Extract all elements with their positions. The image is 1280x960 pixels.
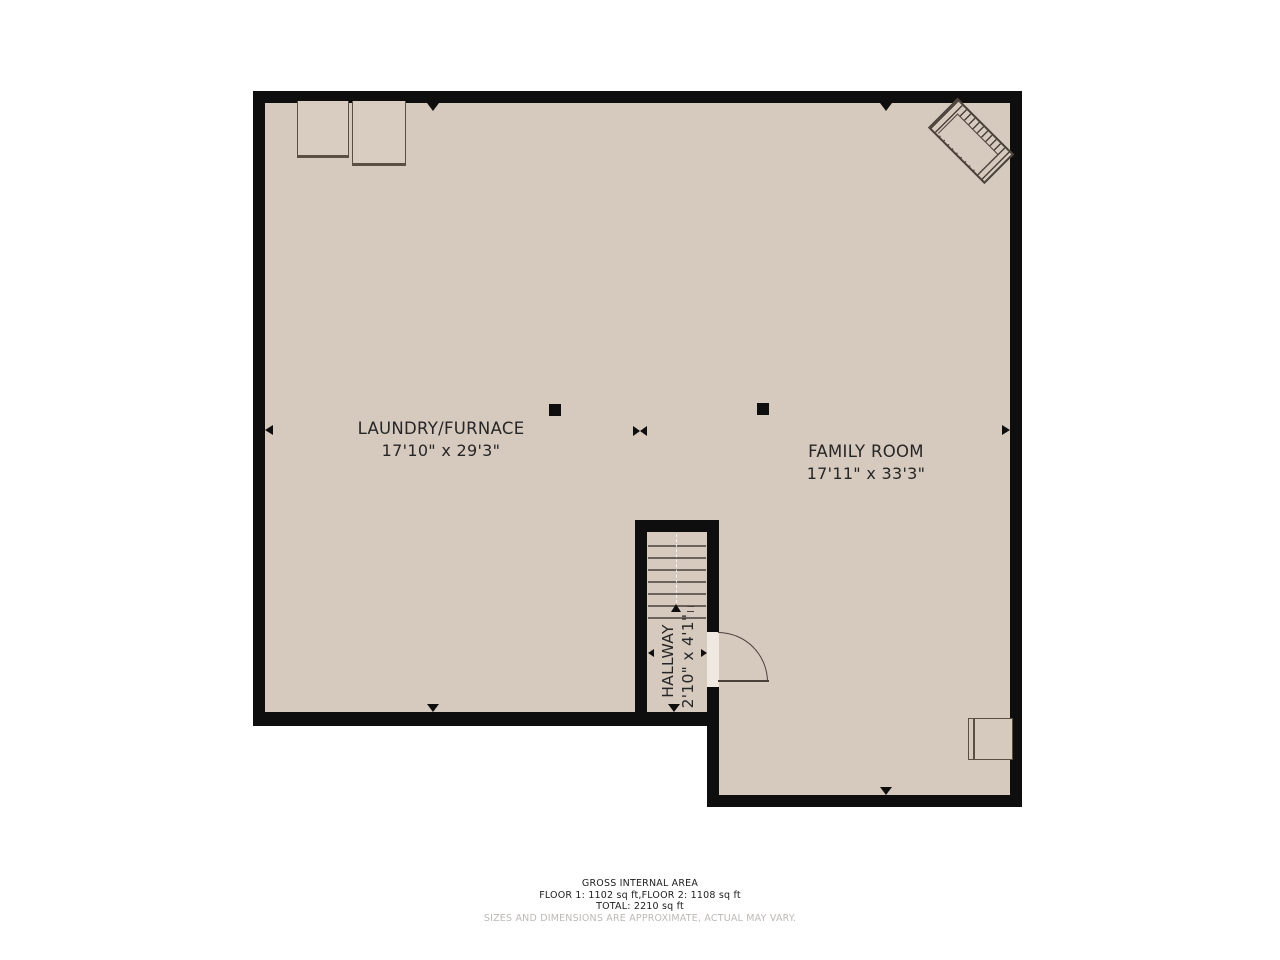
wall-tick-left bbox=[265, 425, 273, 435]
wall-stairs-right-upper bbox=[707, 520, 719, 632]
label-family-room: FAMILY ROOM 17'11" x 33'3" bbox=[807, 441, 926, 485]
support-column-2 bbox=[757, 403, 769, 415]
stair-direction-arrow bbox=[671, 604, 681, 612]
stair-tread bbox=[648, 557, 706, 559]
room-name: FAMILY ROOM bbox=[807, 441, 926, 463]
cabinet bbox=[968, 718, 1013, 760]
stair-tread bbox=[648, 545, 706, 547]
stair-tread bbox=[648, 593, 706, 595]
wall-stairs-left bbox=[635, 520, 647, 712]
wall-tick-right bbox=[1002, 425, 1010, 435]
cabinet-divider bbox=[973, 719, 975, 759]
gross-internal-area-heading: GROSS INTERNAL AREA bbox=[0, 878, 1280, 890]
wall-tick-bottom-1 bbox=[427, 704, 439, 712]
appliance-dryer bbox=[352, 101, 406, 166]
floor-plan: LAUNDRY/FURNACE 17'10" x 29'3" FAMILY RO… bbox=[0, 0, 1280, 960]
room-dimensions: 17'10" x 29'3" bbox=[358, 440, 525, 462]
wall-bottom-right bbox=[707, 795, 1022, 807]
room-dimensions: 17'11" x 33'3" bbox=[807, 463, 926, 485]
hallway-tick-right bbox=[701, 649, 707, 657]
wall-tick-top-1 bbox=[427, 103, 439, 111]
area-summary: GROSS INTERNAL AREA FLOOR 1: 1102 sq ft,… bbox=[0, 878, 1280, 924]
bowtie-marker bbox=[633, 426, 647, 436]
label-hallway: HALLWAY 2'10" x 4'1" bbox=[658, 614, 698, 709]
room-name: LAUNDRY/FURNACE bbox=[358, 418, 525, 440]
wall-bottom-left bbox=[253, 712, 719, 726]
hallway-tick-left bbox=[648, 649, 654, 657]
wall-right bbox=[1010, 91, 1022, 807]
disclaimer-text: SIZES AND DIMENSIONS ARE APPROXIMATE, AC… bbox=[0, 913, 1280, 925]
room-dimensions: 2'10" x 4'1" bbox=[678, 614, 698, 709]
wall-tick-top-2 bbox=[880, 103, 892, 111]
appliance-washer bbox=[297, 101, 349, 158]
bowtie-left-triangle bbox=[633, 426, 640, 436]
wall-tick-bottom-2 bbox=[880, 787, 892, 795]
stair-level-mark bbox=[687, 606, 694, 612]
floor-areas-line: FLOOR 1: 1102 sq ft,FLOOR 2: 1108 sq ft bbox=[0, 890, 1280, 902]
stair-centerline bbox=[676, 534, 677, 608]
wall-left bbox=[253, 91, 265, 726]
total-area-line: TOTAL: 2210 sq ft bbox=[0, 901, 1280, 913]
support-column-1 bbox=[549, 404, 561, 416]
stair-tread bbox=[648, 581, 706, 583]
door-leaf bbox=[718, 680, 769, 682]
bowtie-right-triangle bbox=[640, 426, 647, 436]
label-laundry-furnace: LAUNDRY/FURNACE 17'10" x 29'3" bbox=[358, 418, 525, 462]
wall-stairs-right-lower bbox=[707, 687, 719, 807]
room-name: HALLWAY bbox=[658, 614, 678, 709]
stair-tread bbox=[648, 569, 706, 571]
